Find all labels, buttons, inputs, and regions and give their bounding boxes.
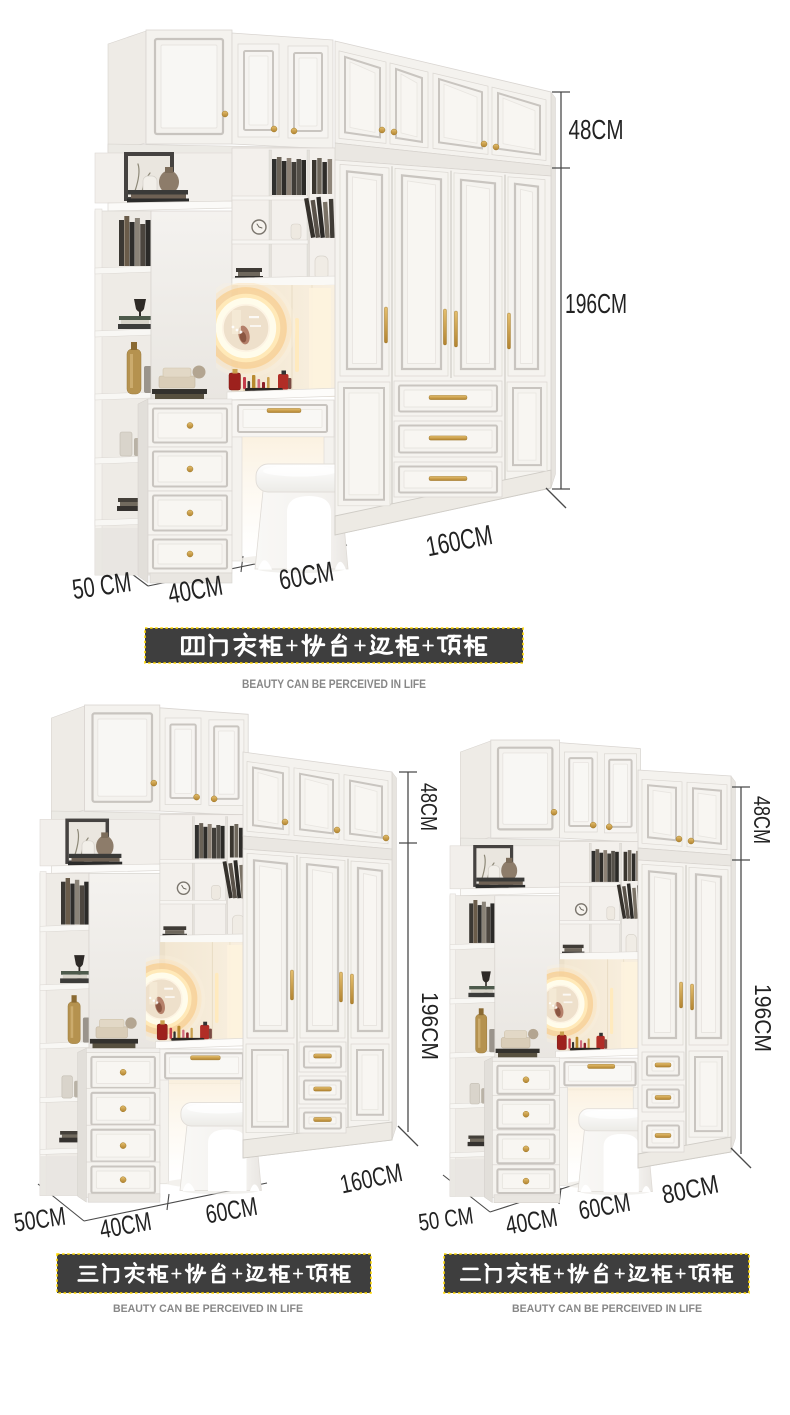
svg-text:196CM: 196CM <box>417 992 443 1060</box>
svg-text:48CM: 48CM <box>416 783 442 831</box>
svg-text:160CM: 160CM <box>337 1157 405 1199</box>
svg-text:48CM: 48CM <box>569 114 624 145</box>
svg-text:40CM: 40CM <box>97 1206 153 1245</box>
svg-text:196CM: 196CM <box>750 984 776 1052</box>
svg-text:160CM: 160CM <box>423 519 495 562</box>
svg-text:80CM: 80CM <box>659 1169 721 1210</box>
svg-text:196CM: 196CM <box>565 288 627 319</box>
svg-text:BEAUTY CAN BE PERCEIVED IN LIF: BEAUTY CAN BE PERCEIVED IN LIFE <box>512 1303 702 1315</box>
svg-text:50CM: 50CM <box>12 1201 68 1238</box>
svg-text:50 CM: 50 CM <box>417 1202 475 1236</box>
svg-text:50 CM: 50 CM <box>70 566 133 605</box>
svg-text:BEAUTY CAN BE PERCEIVED IN LIF: BEAUTY CAN BE PERCEIVED IN LIFE <box>242 679 426 691</box>
svg-text:40CM: 40CM <box>503 1202 559 1241</box>
svg-text:BEAUTY CAN BE PERCEIVED IN LIF: BEAUTY CAN BE PERCEIVED IN LIFE <box>113 1303 303 1315</box>
svg-text:48CM: 48CM <box>749 796 775 844</box>
svg-text:60CM: 60CM <box>203 1191 259 1230</box>
